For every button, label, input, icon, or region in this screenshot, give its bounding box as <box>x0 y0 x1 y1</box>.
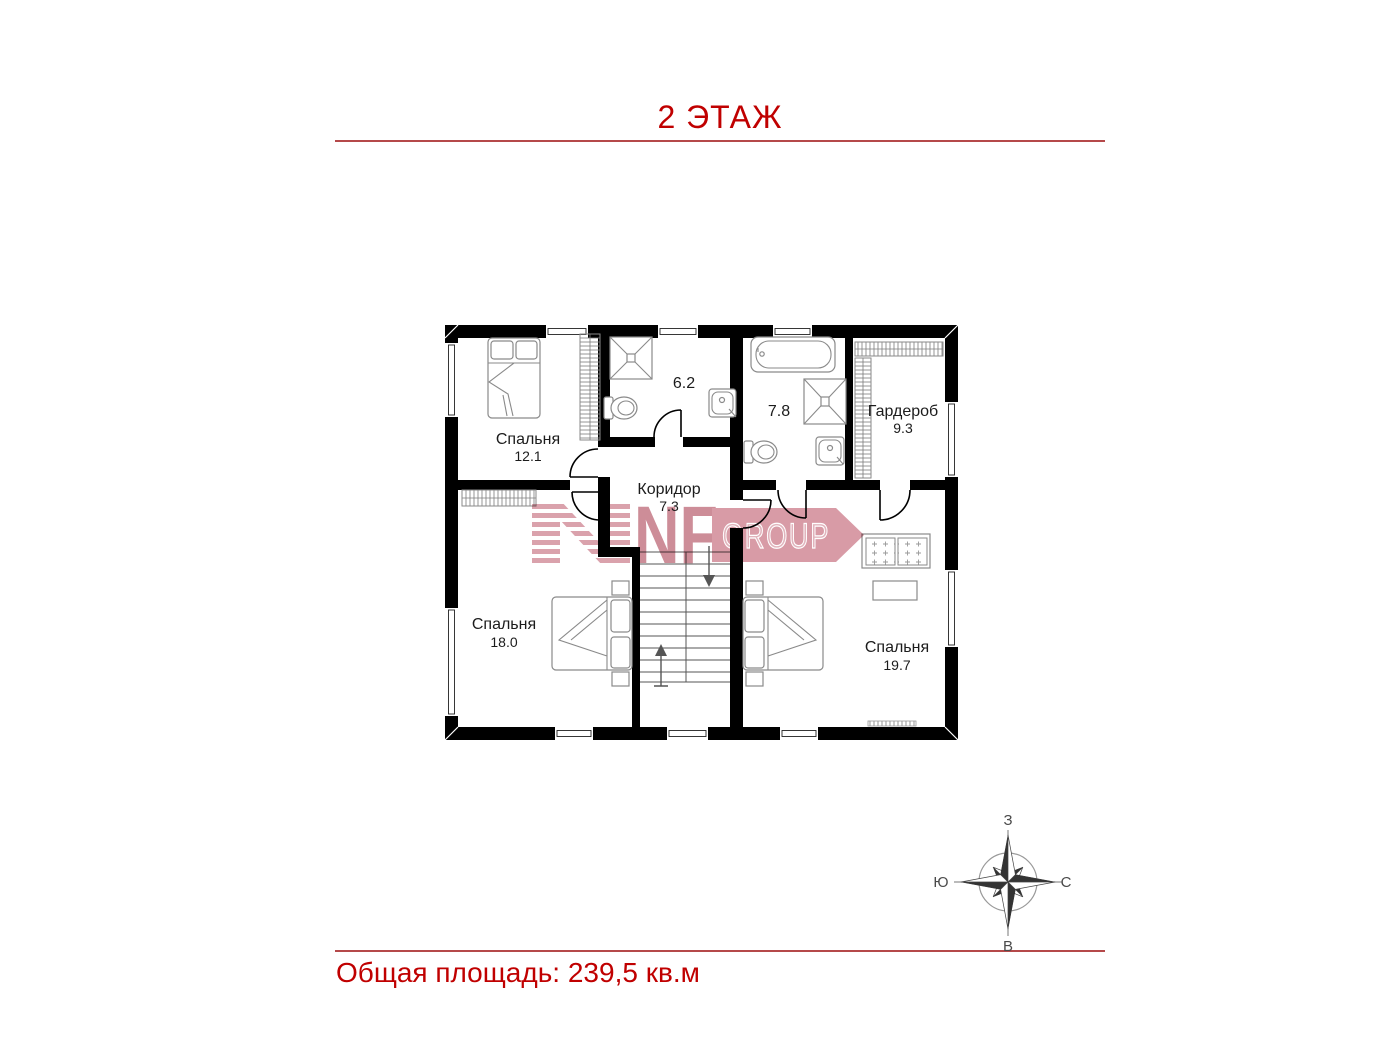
radiator-icon <box>868 721 916 726</box>
shower-icon-bathroom-1 <box>610 337 652 379</box>
room-label-bedroom-3: Спальня <box>865 639 929 656</box>
compass-label-left: Ю <box>933 874 948 891</box>
room-area-bedroom-3: 19.7 <box>883 657 910 673</box>
compass-label-bottom: В <box>1003 938 1013 955</box>
room-area-bathroom-1: 6.2 <box>673 375 695 392</box>
nf-logo-mark <box>532 500 630 565</box>
bed-icon-bedroom-2 <box>552 581 632 686</box>
bathtub-icon <box>751 337 835 372</box>
shower-icon-bathroom-2 <box>804 379 846 424</box>
compass-label-right: С <box>1061 874 1072 891</box>
group-text: GROUP <box>722 517 830 556</box>
room-label-corridor: Коридор <box>637 481 700 498</box>
bed-icon-bedroom-1 <box>488 338 540 418</box>
room-label-bedroom-2: Спальня <box>472 616 536 633</box>
sink-icon-bathroom-1 <box>709 389 736 417</box>
page-root: 2 ЭТАЖ Общая площадь: 239,5 кв.м <box>0 0 1400 1050</box>
nf-group-watermark: NF GROUP <box>532 490 864 581</box>
bed-icon-bedroom-3 <box>743 581 823 686</box>
toilet-icon-bathroom-1 <box>604 397 637 419</box>
dresser-icon <box>862 534 930 568</box>
room-label-wardrobe: Гардероб <box>868 403 938 420</box>
toilet-icon-bathroom-2 <box>744 441 777 463</box>
room-label-bedroom-1: Спальня <box>496 431 560 448</box>
compass-label-top: З <box>1003 812 1012 829</box>
room-area-bedroom-1: 12.1 <box>514 448 541 464</box>
floor-plan-canvas: NF GROUP Спальня 12.1 6.2 7.8 Гардероб 9… <box>0 0 1400 1050</box>
room-area-corridor: 7.3 <box>659 498 679 514</box>
table-icon <box>873 581 917 600</box>
room-area-bathroom-2: 7.8 <box>768 403 790 420</box>
sink-icon-bathroom-2 <box>816 437 844 465</box>
room-area-bedroom-2: 18.0 <box>490 634 517 650</box>
compass-needles <box>961 835 1055 929</box>
compass-rose: З В Ю С <box>933 812 1071 955</box>
room-area-wardrobe: 9.3 <box>893 420 913 436</box>
